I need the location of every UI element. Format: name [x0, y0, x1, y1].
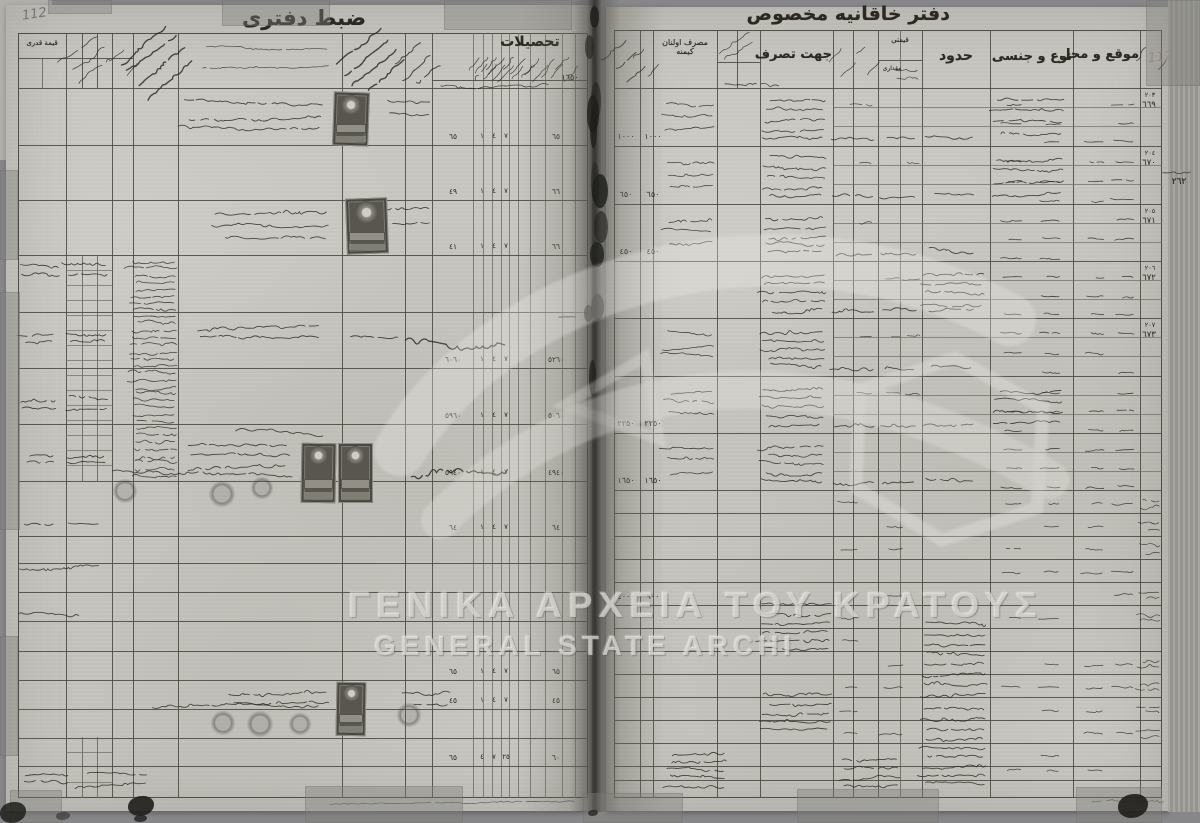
grid-hline	[614, 146, 1162, 147]
stamp-emblem	[341, 95, 361, 115]
grid-vline	[473, 33, 474, 798]
ditto-mark	[1090, 177, 1104, 185]
ditto-mark	[1046, 706, 1059, 714]
tahsilat-figure: ٤	[477, 754, 487, 761]
grid-hline	[66, 752, 112, 753]
tahsilat-figure: ٧	[489, 754, 499, 761]
ditto-mark	[845, 729, 858, 737]
tahsilat-figure: ١	[477, 524, 487, 531]
ditto-mark	[1008, 464, 1022, 472]
ditto-mark	[1008, 483, 1022, 491]
margin-note-word	[1166, 166, 1192, 175]
ditto-mark	[1046, 499, 1059, 507]
tahsilat-figure: ٦٠	[538, 754, 574, 762]
ditto-mark	[1046, 138, 1060, 146]
spine-tear	[591, 294, 604, 320]
grid-hline	[18, 255, 588, 256]
tahsilat-figure: ٤	[489, 412, 499, 419]
tape-patch	[583, 793, 683, 823]
spine-tear	[594, 211, 608, 244]
cursive-word	[766, 361, 822, 372]
grid-hline	[614, 261, 1162, 262]
cursive-word	[766, 418, 822, 429]
grid-hline	[66, 300, 112, 301]
grid-hline	[614, 674, 1162, 675]
serial-figures	[1144, 520, 1160, 532]
ditto-mark	[1046, 464, 1060, 472]
tahsilat-figure: ٧	[501, 356, 511, 363]
tahsilat-figure: ٧	[501, 697, 511, 704]
ditto-mark	[1090, 729, 1103, 737]
amount-figure: ١٦٥٠	[614, 477, 638, 485]
ditto-mark	[1120, 464, 1134, 472]
mid-figures	[884, 306, 916, 315]
stamp-band	[341, 479, 370, 489]
ditto-mark	[1008, 216, 1022, 224]
spine-tear	[590, 108, 597, 147]
tahsilat-figure: ٤٩	[434, 188, 472, 196]
mid-figures	[836, 478, 874, 487]
seal-captions	[150, 700, 320, 710]
hudud-figures	[930, 132, 974, 142]
grid-vline	[112, 33, 113, 798]
ditto-mark	[1120, 158, 1134, 166]
grid-hline	[614, 318, 1162, 319]
cihet-tasarruf-note	[764, 326, 826, 364]
cihet-tasarruf-note	[762, 690, 832, 734]
grid-hline	[18, 536, 588, 537]
ditto-mark	[1120, 177, 1134, 185]
masraf-note	[668, 328, 714, 362]
ink-seal	[288, 712, 312, 736]
ink-seal	[208, 480, 236, 508]
grid-vline	[42, 58, 43, 88]
tahsilat-figure: ٥٢٦٠	[538, 356, 574, 364]
tahsilat-figure: ٤١	[434, 243, 472, 251]
ditto-mark	[1090, 522, 1103, 530]
ditto-mark	[1046, 254, 1060, 262]
grid-hline	[614, 720, 1162, 721]
tahsilat-figure: ٦٦	[538, 243, 574, 251]
mid-figures	[840, 755, 900, 789]
ditto-mark	[1120, 445, 1134, 453]
grid-hline	[66, 450, 112, 451]
ditto-mark	[1008, 545, 1021, 553]
mid-figures	[884, 249, 916, 258]
tape-patch	[48, 0, 112, 14]
tahsilat-figure: ٦٥	[538, 668, 574, 676]
grid-hline	[66, 360, 112, 361]
grid-hline	[614, 582, 1162, 583]
ditto-mark	[1090, 407, 1104, 415]
grid-hline	[717, 62, 760, 63]
tahsilat-figure: ٥٩٤٠	[434, 469, 472, 477]
cihet-tasarruf-note	[764, 269, 826, 306]
hudud-figures	[930, 247, 974, 257]
dense-handwriting-column	[135, 258, 177, 480]
entry-note	[215, 205, 330, 245]
ditto-mark	[860, 390, 872, 397]
ditto-mark	[1090, 273, 1104, 281]
ditto-mark	[890, 660, 903, 668]
ditto-mark	[1046, 235, 1060, 243]
mid-figures	[836, 421, 874, 430]
tape-patch	[444, 0, 572, 30]
ditto-mark	[1046, 216, 1060, 224]
ditto-mark	[1008, 235, 1022, 243]
grid-hline	[18, 621, 588, 622]
grid-hline	[66, 375, 112, 376]
nev-description	[995, 384, 1065, 428]
ditto-mark	[1090, 330, 1104, 338]
ditto-mark	[845, 545, 858, 553]
tape-patch	[222, 0, 330, 26]
ditto-mark	[890, 591, 903, 599]
ditto-mark	[1120, 216, 1134, 224]
ditto-mark	[1008, 614, 1021, 622]
entry-note	[20, 560, 100, 570]
ditto-mark	[845, 683, 858, 691]
serial-number: ٦٧٠	[1138, 159, 1160, 168]
entry-note	[28, 772, 68, 786]
entry-note	[240, 430, 330, 440]
ditto-mark	[1046, 483, 1060, 491]
stamp-band	[336, 136, 366, 142]
ditto-mark	[908, 275, 920, 282]
tahsilat-figure: ٤	[489, 469, 499, 476]
ink-seal	[246, 710, 274, 738]
tahsilat-figure: ٤	[489, 356, 499, 363]
ditto-mark	[1090, 683, 1103, 691]
ditto-mark	[1046, 349, 1060, 357]
serial-figures	[1144, 612, 1160, 624]
header-mikdar: مقدارى	[880, 66, 904, 73]
grid-vline	[66, 33, 67, 798]
tahsilat-figure: ١	[477, 668, 487, 675]
serial-number-small: ٢٠٤	[1140, 150, 1160, 157]
ditto-mark	[1008, 349, 1022, 357]
grid-hline	[66, 420, 112, 421]
ditto-mark	[1090, 292, 1104, 300]
grid-hline	[833, 280, 1162, 281]
mid-figures	[884, 134, 916, 143]
ditto-mark	[1090, 158, 1104, 166]
ditto-mark	[845, 499, 858, 507]
cihet-tasarruf-note	[764, 212, 826, 249]
ditto-mark	[1120, 138, 1134, 146]
amount-figure: ١٠٠٠	[614, 133, 638, 141]
ditto-mark	[1046, 445, 1060, 453]
tape-patch	[305, 786, 463, 823]
stray-mark	[566, 310, 576, 324]
grid-hline	[614, 204, 1162, 205]
grid-hline	[18, 88, 588, 89]
serial-number: ٦٧١	[1138, 217, 1160, 226]
ditto-mark	[1046, 273, 1060, 281]
entry-note	[390, 200, 430, 230]
entry-note	[350, 332, 400, 342]
mid-figures	[884, 192, 916, 201]
ditto-mark	[1120, 660, 1133, 668]
hudud-figures	[930, 476, 974, 486]
tahsilat-figure: ٦٠٦٠	[434, 356, 472, 364]
amount-figure: ٦٥٠	[641, 191, 665, 199]
header-cihet-tasarruf: جهت تصرف	[762, 48, 832, 63]
grid-hline	[878, 60, 922, 61]
ditto-mark	[1120, 368, 1134, 376]
ditto-mark	[845, 637, 858, 645]
tahsilat-figure: ٤	[489, 697, 499, 704]
mid-figures	[884, 364, 916, 373]
grid-hline	[614, 433, 1162, 434]
grid-hline	[18, 592, 588, 593]
tahsilat-figure: ٦٦	[538, 188, 574, 196]
masraf-note	[668, 386, 714, 419]
grid-hline	[614, 559, 1162, 560]
tahsilat-figure: ٤	[489, 133, 499, 140]
tape-patch	[0, 292, 20, 530]
tahsilat-figure: ٥٠٦٠	[538, 412, 574, 420]
serial-figures	[1144, 589, 1160, 601]
tahsilat-figure: ٧	[501, 469, 511, 476]
serial-figures	[1144, 497, 1160, 509]
ditto-mark	[1046, 368, 1060, 376]
serial-figures	[1144, 727, 1160, 739]
tahsilat-figure: ٤	[489, 243, 499, 250]
margin-figures	[24, 452, 54, 466]
grid-vline	[178, 33, 179, 798]
grid-hline	[66, 285, 112, 286]
tahsilat-figure: ١	[477, 697, 487, 704]
hudud-figures	[930, 362, 974, 372]
nev-description	[995, 94, 1065, 138]
margin-figures	[70, 330, 106, 344]
ditto-mark	[1120, 311, 1134, 319]
grid-vline	[405, 33, 406, 798]
ditto-mark	[860, 102, 872, 109]
ditto-mark	[1090, 568, 1103, 576]
tahsilat-figure: ١	[477, 133, 487, 140]
header-mevki-mahal: موقع و محل	[1075, 48, 1139, 63]
ink-blot	[134, 815, 147, 822]
entry-note	[185, 98, 330, 132]
header-tahsilat: تحصيلات	[484, 34, 576, 50]
ditto-mark	[860, 332, 872, 339]
ditto-mark	[1120, 292, 1134, 300]
tahsilat-total: ١٦٥٠	[554, 73, 586, 82]
ditto-mark	[1090, 660, 1103, 668]
ditto-mark	[1008, 254, 1022, 262]
header-note-line	[196, 44, 328, 53]
amount-figure: ٤٥٠	[641, 248, 665, 256]
grid-hline	[18, 680, 588, 681]
ditto-mark	[1090, 545, 1103, 553]
amount-figure: ٢٢٥٠	[641, 420, 665, 428]
amount-figure: ٢٢٥٠	[614, 420, 638, 428]
ditto-mark	[1008, 766, 1021, 774]
masraf-note	[668, 214, 714, 247]
tahsilat-figure: ٢٥	[501, 754, 511, 761]
tahsilat-figure: ٦٥	[434, 133, 472, 141]
tape-patch	[0, 170, 18, 260]
mid-figures	[836, 364, 874, 373]
stamp-band	[304, 492, 333, 499]
grid-hline	[18, 651, 588, 652]
tape-patch	[797, 789, 939, 823]
grid-hline	[614, 513, 1162, 514]
ditto-mark	[1120, 330, 1134, 338]
ditto-mark	[1090, 706, 1103, 714]
grid-hline	[614, 605, 1162, 606]
ditto-mark	[1008, 273, 1022, 281]
spine-tear	[590, 6, 599, 28]
ditto-mark	[1046, 292, 1060, 300]
ditto-mark	[845, 614, 858, 622]
grid-hline	[614, 743, 1162, 744]
ditto-mark	[890, 545, 903, 553]
tahsilat-figure: ٧	[501, 243, 511, 250]
cursive-word	[766, 189, 822, 200]
header-note-line	[192, 60, 332, 69]
ditto-mark	[1090, 235, 1104, 243]
tahsilat-figure: ١	[477, 243, 487, 250]
ditto-mark	[860, 218, 872, 225]
margin-figures	[70, 396, 108, 412]
mid-figures	[836, 306, 874, 315]
column-footing-words	[435, 80, 553, 88]
amount-figure: ٤٠٠٠	[614, 593, 638, 601]
grid-hline	[66, 315, 112, 316]
ditto-mark	[1120, 683, 1133, 691]
masraf-note	[668, 156, 714, 190]
mid-figures	[884, 478, 916, 487]
grid-hline	[614, 697, 1162, 698]
entry-note	[20, 610, 80, 620]
entry-note	[80, 770, 150, 788]
ditto-mark	[1090, 445, 1104, 453]
ditto-mark	[1090, 766, 1103, 774]
masraf-note	[668, 443, 714, 476]
ditto-mark	[1046, 568, 1059, 576]
grid-hline	[614, 628, 1162, 629]
ditto-mark	[1008, 311, 1022, 319]
ditto-mark	[908, 332, 920, 339]
subcolumn-label	[902, 64, 918, 84]
ditto-mark	[1120, 568, 1133, 576]
ditto-mark	[845, 706, 858, 714]
serial-number-small: ٢٠٣	[1140, 92, 1160, 99]
ditto-mark	[1120, 273, 1134, 281]
ditto-mark	[1120, 483, 1134, 491]
ink-seal	[210, 710, 236, 736]
tahsilat-figure: ٧	[501, 133, 511, 140]
hudud-figures	[930, 419, 974, 429]
grid-hline	[18, 145, 588, 146]
cihet-tasarruf-note	[764, 384, 826, 421]
ditto-mark	[1008, 445, 1022, 453]
tape-patch	[0, 636, 18, 756]
margin-figures	[22, 396, 56, 412]
tahsilat-figure: ٦٥	[538, 133, 574, 141]
entry-note	[390, 95, 432, 121]
ditto-mark	[1120, 591, 1133, 599]
ditto-mark	[1120, 235, 1134, 243]
grid-hline	[66, 345, 112, 346]
ditto-mark	[1090, 483, 1104, 491]
hudud-description	[925, 620, 987, 698]
grid-hline	[614, 88, 1162, 89]
ditto-mark	[1120, 119, 1134, 127]
amount-figure: ١٦٥٠	[641, 477, 665, 485]
ditto-mark	[1008, 499, 1021, 507]
header-kiymet-kadr: قيمة قدرى	[19, 39, 65, 47]
grid-hline	[833, 242, 1162, 243]
grid-hline	[18, 563, 588, 564]
hudud-description	[925, 705, 987, 789]
right-page-title: دفتر خاقانيه مخصوص	[778, 4, 950, 26]
grid-hline	[18, 766, 588, 767]
stamp-band	[336, 124, 366, 133]
stamp-emblem	[343, 685, 360, 702]
margin-figures	[24, 262, 60, 280]
grid-hline	[614, 490, 1162, 491]
cihet-tasarruf-note	[762, 600, 832, 652]
mid-figures	[884, 421, 916, 430]
grid-hline	[614, 651, 1162, 652]
page-stack-edge	[1168, 0, 1200, 812]
ditto-mark	[1008, 330, 1022, 338]
ditto-mark	[890, 522, 903, 530]
margin-figures	[70, 518, 100, 530]
spine-tear	[585, 35, 594, 60]
ditto-mark	[860, 160, 872, 167]
hudud-description	[925, 268, 985, 310]
tahsilat-figure: ٤٥	[538, 697, 574, 705]
amount-figure: ٤٥٠	[614, 248, 638, 256]
tahsilat-figure: ٧	[501, 188, 511, 195]
hudud-figures	[930, 190, 974, 200]
ditto-mark	[1090, 499, 1103, 507]
stamp-band	[341, 492, 370, 499]
serial-number-small: ٢٠٧	[1140, 322, 1160, 329]
ditto-mark	[1090, 311, 1104, 319]
grid-hline	[833, 356, 1162, 357]
cihet-tasarruf-note	[764, 441, 826, 478]
cihet-tasarruf-note	[764, 154, 826, 192]
grid-hline	[66, 435, 112, 436]
tahsilat-figure: ١	[477, 356, 487, 363]
tahsilat-figure: ٤٩٤٠	[538, 469, 574, 477]
header-kiymet: قيمتى	[879, 36, 921, 44]
grid-vline	[530, 33, 531, 798]
tahsilat-figure: ٦٥	[434, 754, 472, 762]
tahsilat-figure: ٧	[501, 668, 511, 675]
header-hudud: حدود	[924, 48, 988, 64]
tahsilat-figure: ١	[477, 188, 487, 195]
margin-figures	[28, 518, 54, 530]
cursive-word	[766, 303, 822, 314]
spine-tear	[589, 360, 596, 396]
margin-figures	[70, 452, 106, 466]
ditto-mark	[890, 683, 903, 691]
entry-note	[200, 318, 320, 344]
tahsilat-figure: ٥٩٦٠	[434, 412, 472, 420]
tahsilat-figure: ١	[477, 412, 487, 419]
seal-captions	[115, 470, 295, 482]
grid-hline	[18, 200, 588, 201]
grid-hline	[833, 337, 1162, 338]
cursive-word	[766, 475, 822, 486]
